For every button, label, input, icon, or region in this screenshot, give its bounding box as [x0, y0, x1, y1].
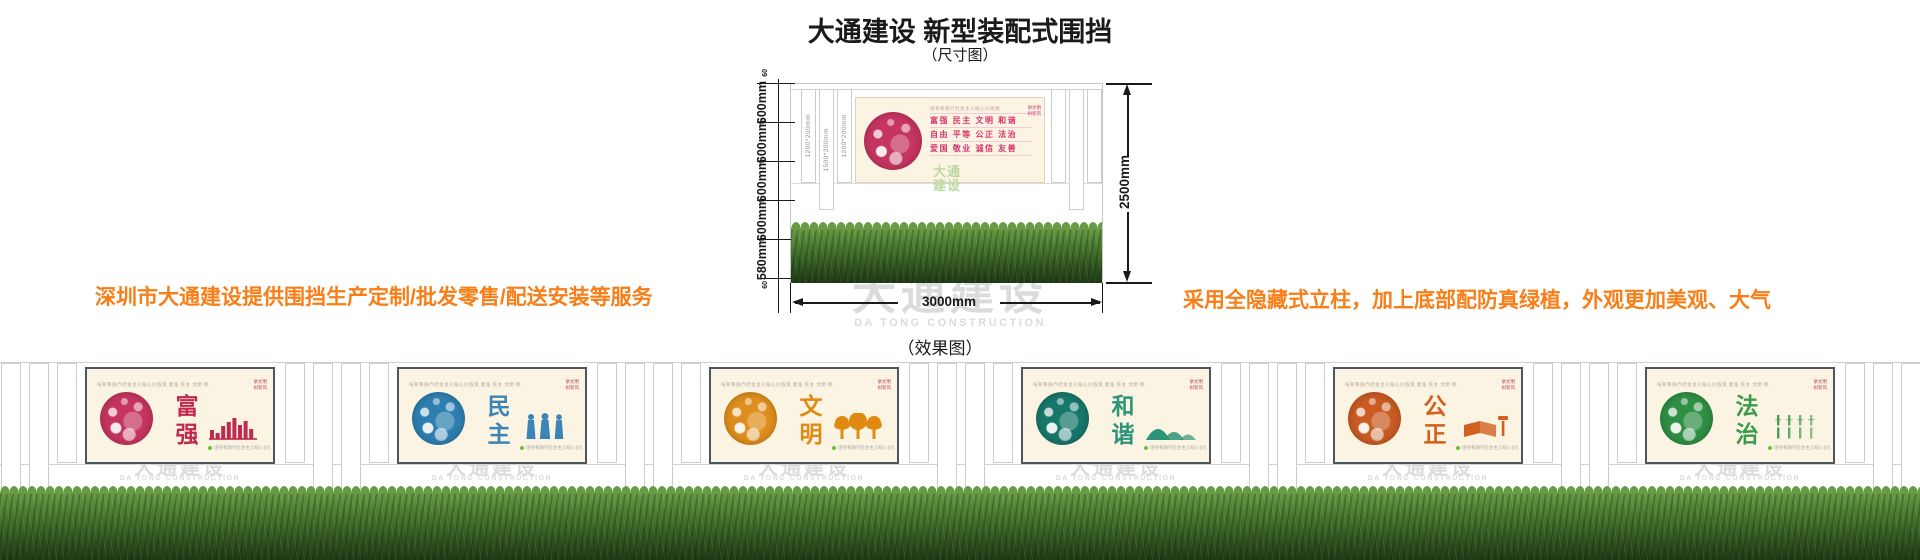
fence-slat — [1589, 363, 1609, 491]
effect-panel-2: 培育和践行社会主义核心价值观 富强 民主 文明 和谐 自由 平等 公正 法治 爱… — [397, 367, 587, 464]
fence-slat — [1873, 363, 1893, 491]
panel-title: 富强 — [168, 394, 202, 458]
fence-slat — [965, 363, 985, 491]
panel-watermark-english: DA TONG CONSTRUCTION — [397, 475, 587, 482]
poster-canvas: 大通建设 新型装配式围挡 （尺寸图） 大通建设 DA TONG CONSTRUC… — [0, 0, 1920, 560]
fence-slat — [1, 363, 21, 491]
fence-slat — [29, 363, 49, 491]
fence-slat — [1533, 363, 1553, 463]
fence-slat — [1617, 363, 1637, 463]
fence-slat — [909, 363, 929, 463]
papercut-circle-graphic — [1036, 392, 1089, 445]
fence-slat — [1561, 363, 1581, 491]
effect-rendering: 大通建设DA TONG CONSTRUCTION大通建设DA TONG CONS… — [0, 0, 1920, 560]
panel-title: 公正 — [1416, 394, 1450, 458]
fence-slat — [341, 363, 361, 491]
civility-badge: 讲文明 树新风 — [1814, 379, 1828, 390]
effect-panel-5: 培育和践行社会主义核心价值观 富强 民主 文明 和谐 自由 平等 公正 法治 爱… — [1333, 367, 1523, 464]
fence-slat — [57, 363, 77, 463]
panel-header-strip: 培育和践行社会主义核心价值观 富强 民主 文明 和谐 自由 平等 公正 法治 爱… — [97, 382, 209, 388]
papercut-circle-graphic — [412, 392, 465, 445]
papercut-circle-graphic — [1348, 392, 1401, 445]
fence-slat — [285, 363, 305, 463]
panel-watermark-english: DA TONG CONSTRUCTION — [1021, 475, 1211, 482]
panel-watermark-english: DA TONG CONSTRUCTION — [1645, 475, 1835, 482]
effect-panel-1: 培育和践行社会主义核心价值观 富强 民主 文明 和谐 自由 平等 公正 法治 爱… — [85, 367, 275, 464]
green-dot-icon — [520, 446, 524, 450]
panel-watermark-english: DA TONG CONSTRUCTION — [85, 475, 275, 482]
civility-badge: 讲文明 树新风 — [1190, 379, 1204, 390]
panel-title: 民主 — [480, 394, 514, 458]
panel-footnote: 培育和践行社会主义核心价值观 — [208, 445, 270, 451]
people-motif-icon — [521, 413, 573, 446]
panel-watermark-english: DA TONG CONSTRUCTION — [1333, 475, 1523, 482]
panel-header-strip: 培育和践行社会主义核心价值观 富强 民主 文明 和谐 自由 平等 公正 法治 爱… — [409, 382, 521, 388]
fence-slat — [1277, 363, 1297, 491]
panel-title: 法治 — [1728, 394, 1762, 458]
fence-bottom-rail — [0, 464, 1920, 465]
fence-slat — [1221, 363, 1241, 463]
papercut-circle-graphic — [724, 392, 777, 445]
panel-header-strip: 培育和践行社会主义核心价值观 富强 民主 文明 和谐 自由 平等 公正 法治 爱… — [1033, 382, 1145, 388]
fence-slat — [1249, 363, 1269, 491]
papercut-circle-graphic — [1660, 392, 1713, 445]
effect-panel-4: 培育和践行社会主义核心价值观 富强 民主 文明 和谐 自由 平等 公正 法治 爱… — [1021, 367, 1211, 464]
panel-watermark-english: DA TONG CONSTRUCTION — [709, 475, 899, 482]
fence-slat — [1305, 363, 1325, 463]
fence-slat — [1845, 363, 1865, 463]
panel-header-strip: 培育和践行社会主义核心价值观 富强 民主 文明 和谐 自由 平等 公正 法治 爱… — [1345, 382, 1457, 388]
fence-slat — [625, 363, 645, 491]
panel-footnote: 培育和践行社会主义核心价值观 — [520, 445, 582, 451]
panel-header-strip: 培育和践行社会主义核心价值观 富强 民主 文明 和谐 自由 平等 公正 法治 爱… — [721, 382, 833, 388]
skyline-motif-icon — [209, 413, 261, 446]
green-dot-icon — [1144, 446, 1148, 450]
panel-header-strip: 培育和践行社会主义核心价值观 富强 民主 文明 和谐 自由 平等 公正 法治 爱… — [1657, 382, 1769, 388]
civility-badge: 讲文明 树新风 — [566, 379, 580, 390]
panel-footnote: 培育和践行社会主义核心价值观 — [1768, 445, 1830, 451]
green-dot-icon — [1456, 446, 1460, 450]
fence-slat — [993, 363, 1013, 463]
book-motif-icon — [1457, 413, 1509, 446]
civility-badge: 讲文明 树新风 — [254, 379, 268, 390]
green-dot-icon — [208, 446, 212, 450]
effect-panel-3: 培育和践行社会主义核心价值观 富强 民主 文明 和谐 自由 平等 公正 法治 爱… — [709, 367, 899, 464]
green-dot-icon — [832, 446, 836, 450]
papercut-circle-graphic — [100, 392, 153, 445]
fence-slat — [313, 363, 333, 491]
panel-footnote: 培育和践行社会主义核心价值观 — [1456, 445, 1518, 451]
civility-badge: 讲文明 树新风 — [1502, 379, 1516, 390]
fence-slat — [653, 363, 673, 491]
mountains-motif-icon — [1145, 413, 1197, 446]
fence-slat — [681, 363, 701, 463]
bamboo-motif-icon — [1769, 413, 1821, 446]
panel-footnote: 培育和践行社会主义核心价值观 — [832, 445, 894, 451]
trees-motif-icon — [833, 413, 885, 446]
panel-footnote: 培育和践行社会主义核心价值观 — [1144, 445, 1206, 451]
fence-slat — [369, 363, 389, 463]
panel-title: 和谐 — [1104, 394, 1138, 458]
green-dot-icon — [1768, 446, 1772, 450]
fence-slat — [1901, 363, 1920, 491]
fence-slat — [937, 363, 957, 491]
effect-panel-6: 培育和践行社会主义核心价值观 富强 民主 文明 和谐 自由 平等 公正 法治 爱… — [1645, 367, 1835, 464]
panel-title: 文明 — [792, 394, 826, 458]
effect-hedge — [0, 493, 1920, 560]
fence-slat — [597, 363, 617, 463]
civility-badge: 讲文明 树新风 — [878, 379, 892, 390]
